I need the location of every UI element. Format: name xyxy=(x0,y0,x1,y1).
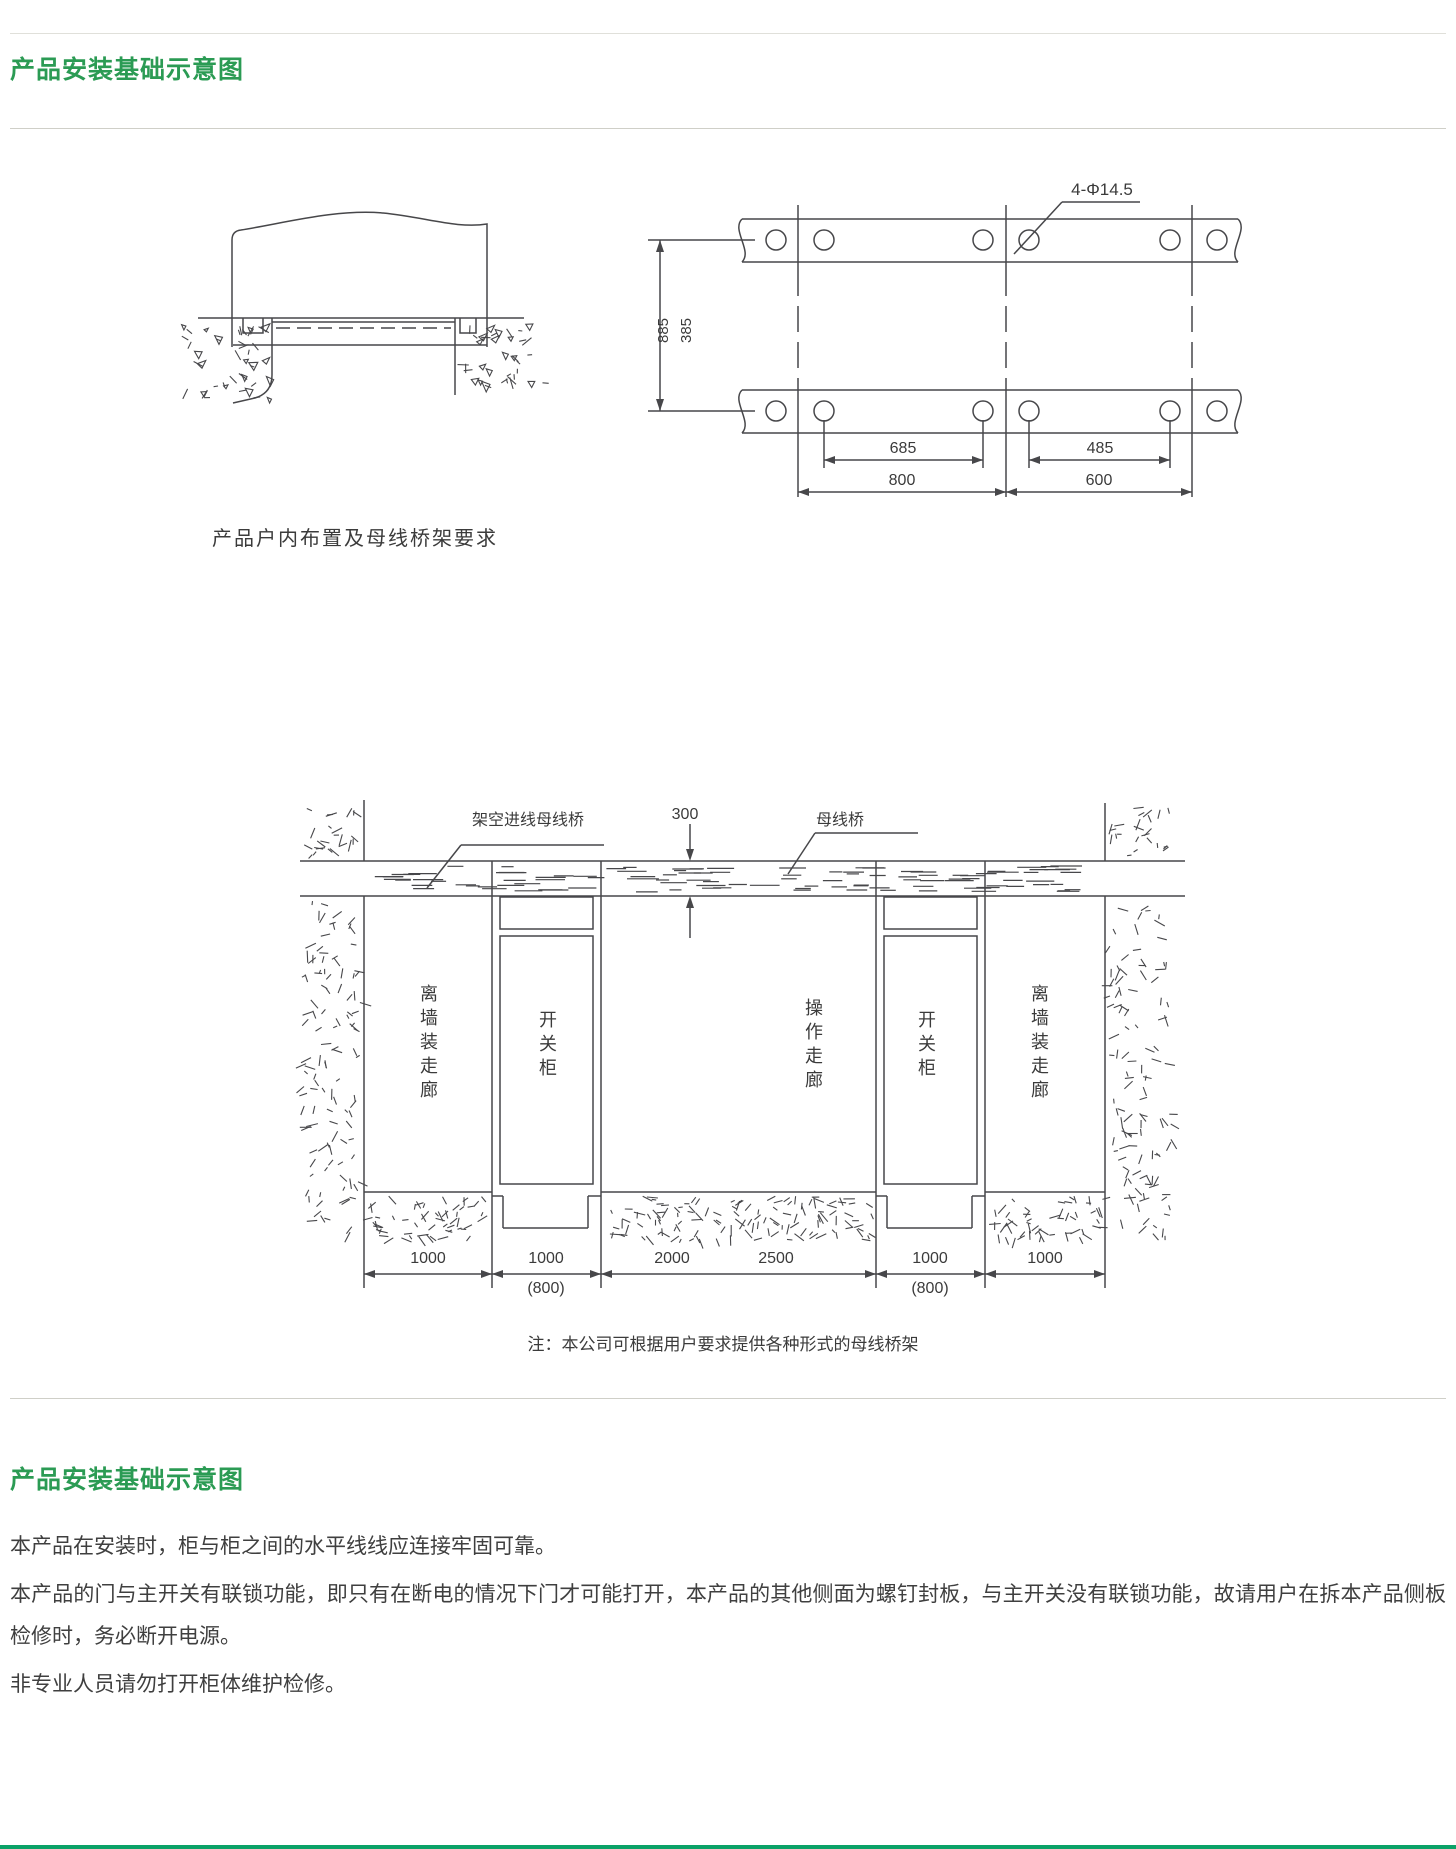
boundary-centerlines xyxy=(798,205,1192,497)
room-dim-2000: 2000 xyxy=(654,1250,690,1268)
dim-485: 485 xyxy=(1087,440,1114,458)
zone-cabinet-left: 开关柜 xyxy=(534,1010,560,1082)
floor-concrete-1 xyxy=(363,1196,487,1246)
zone-cabinet-right: 开关柜 xyxy=(913,1010,939,1082)
busbar-leader xyxy=(788,833,918,874)
room-dim-2500: 2500 xyxy=(758,1250,794,1268)
floor-and-channel xyxy=(198,318,524,403)
dim-385: 385 xyxy=(678,318,695,343)
wall-concrete-right-top xyxy=(1109,807,1169,855)
overhead-busbar-label: 架空进线母线桥 xyxy=(472,806,584,830)
top-rail xyxy=(739,219,1241,262)
zone-corridor-right: 离墙装走廊 xyxy=(1026,984,1052,1104)
room-dim-1000-d: 1000 xyxy=(1027,1250,1063,1268)
walls xyxy=(364,800,1105,1192)
room-dim-1000-a: 1000 xyxy=(410,1250,446,1268)
section2-title: 产品安装基础示意图 xyxy=(10,1460,244,1496)
bottom-accent-strip xyxy=(0,1845,1456,1849)
busbar-hatch xyxy=(375,866,1082,892)
dim-600: 600 xyxy=(1086,472,1113,490)
room-dim-1000-c: 1000 xyxy=(912,1250,948,1268)
room-dim-800-b: (800) xyxy=(911,1280,948,1298)
wall-concrete-left-top xyxy=(304,808,361,858)
dim-300-arrows xyxy=(686,824,694,938)
floor-concrete-3 xyxy=(989,1196,1108,1248)
bottom-rail xyxy=(739,390,1241,433)
dim-885: 885 xyxy=(655,318,672,343)
room-dim-800-a: (800) xyxy=(527,1280,564,1298)
wall-concrete-right xyxy=(1102,906,1179,1240)
dim-300-label: 300 xyxy=(672,806,699,824)
concrete-right xyxy=(458,324,549,392)
paragraph-1: 本产品在安装时，柜与柜之间的水平线线应连接牢固可靠。 xyxy=(10,1526,1446,1568)
bottom-dimension-lines xyxy=(364,1192,1105,1288)
concrete-left xyxy=(182,324,274,403)
hole-note-label: 4-Φ14.5 xyxy=(1071,180,1133,200)
room-dim-1000-b: 1000 xyxy=(528,1250,564,1268)
zone-corridor-left: 离墙装走廊 xyxy=(415,984,441,1104)
busbar-label: 母线桥 xyxy=(816,806,864,830)
section-divider xyxy=(10,1398,1446,1399)
zone-corridor-center: 操作走廊 xyxy=(800,998,826,1094)
dim-800: 800 xyxy=(889,472,916,490)
page-title: 产品安装基础示意图 xyxy=(10,50,244,86)
top-hairline xyxy=(10,33,1446,34)
floor-concrete-2 xyxy=(610,1196,876,1248)
wall-concrete-left xyxy=(296,901,371,1242)
hole-leader xyxy=(1014,202,1140,254)
paragraph-3: 非专业人员请勿打开柜体维护检修。 xyxy=(10,1664,1446,1706)
bottom-dimensions xyxy=(798,420,1192,496)
figure-indoor-section xyxy=(120,150,560,550)
paragraph-2: 本产品的门与主开关有联锁功能，即只有在断电的情况下门才可能打开，本产品的其他侧面… xyxy=(10,1574,1446,1658)
cabinet-outline xyxy=(232,212,487,347)
figure-room-note: 注：本公司可根据用户要求提供各种形式的母线桥架 xyxy=(528,1330,919,1355)
dim-685: 685 xyxy=(890,440,917,458)
header-divider xyxy=(10,128,1446,129)
figure-indoor-caption: 产品户内布置及母线桥架要求 xyxy=(212,522,498,551)
catalog-page: 产品安装基础示意图 产品户内布置及母线桥架要求 xyxy=(0,0,1456,1849)
